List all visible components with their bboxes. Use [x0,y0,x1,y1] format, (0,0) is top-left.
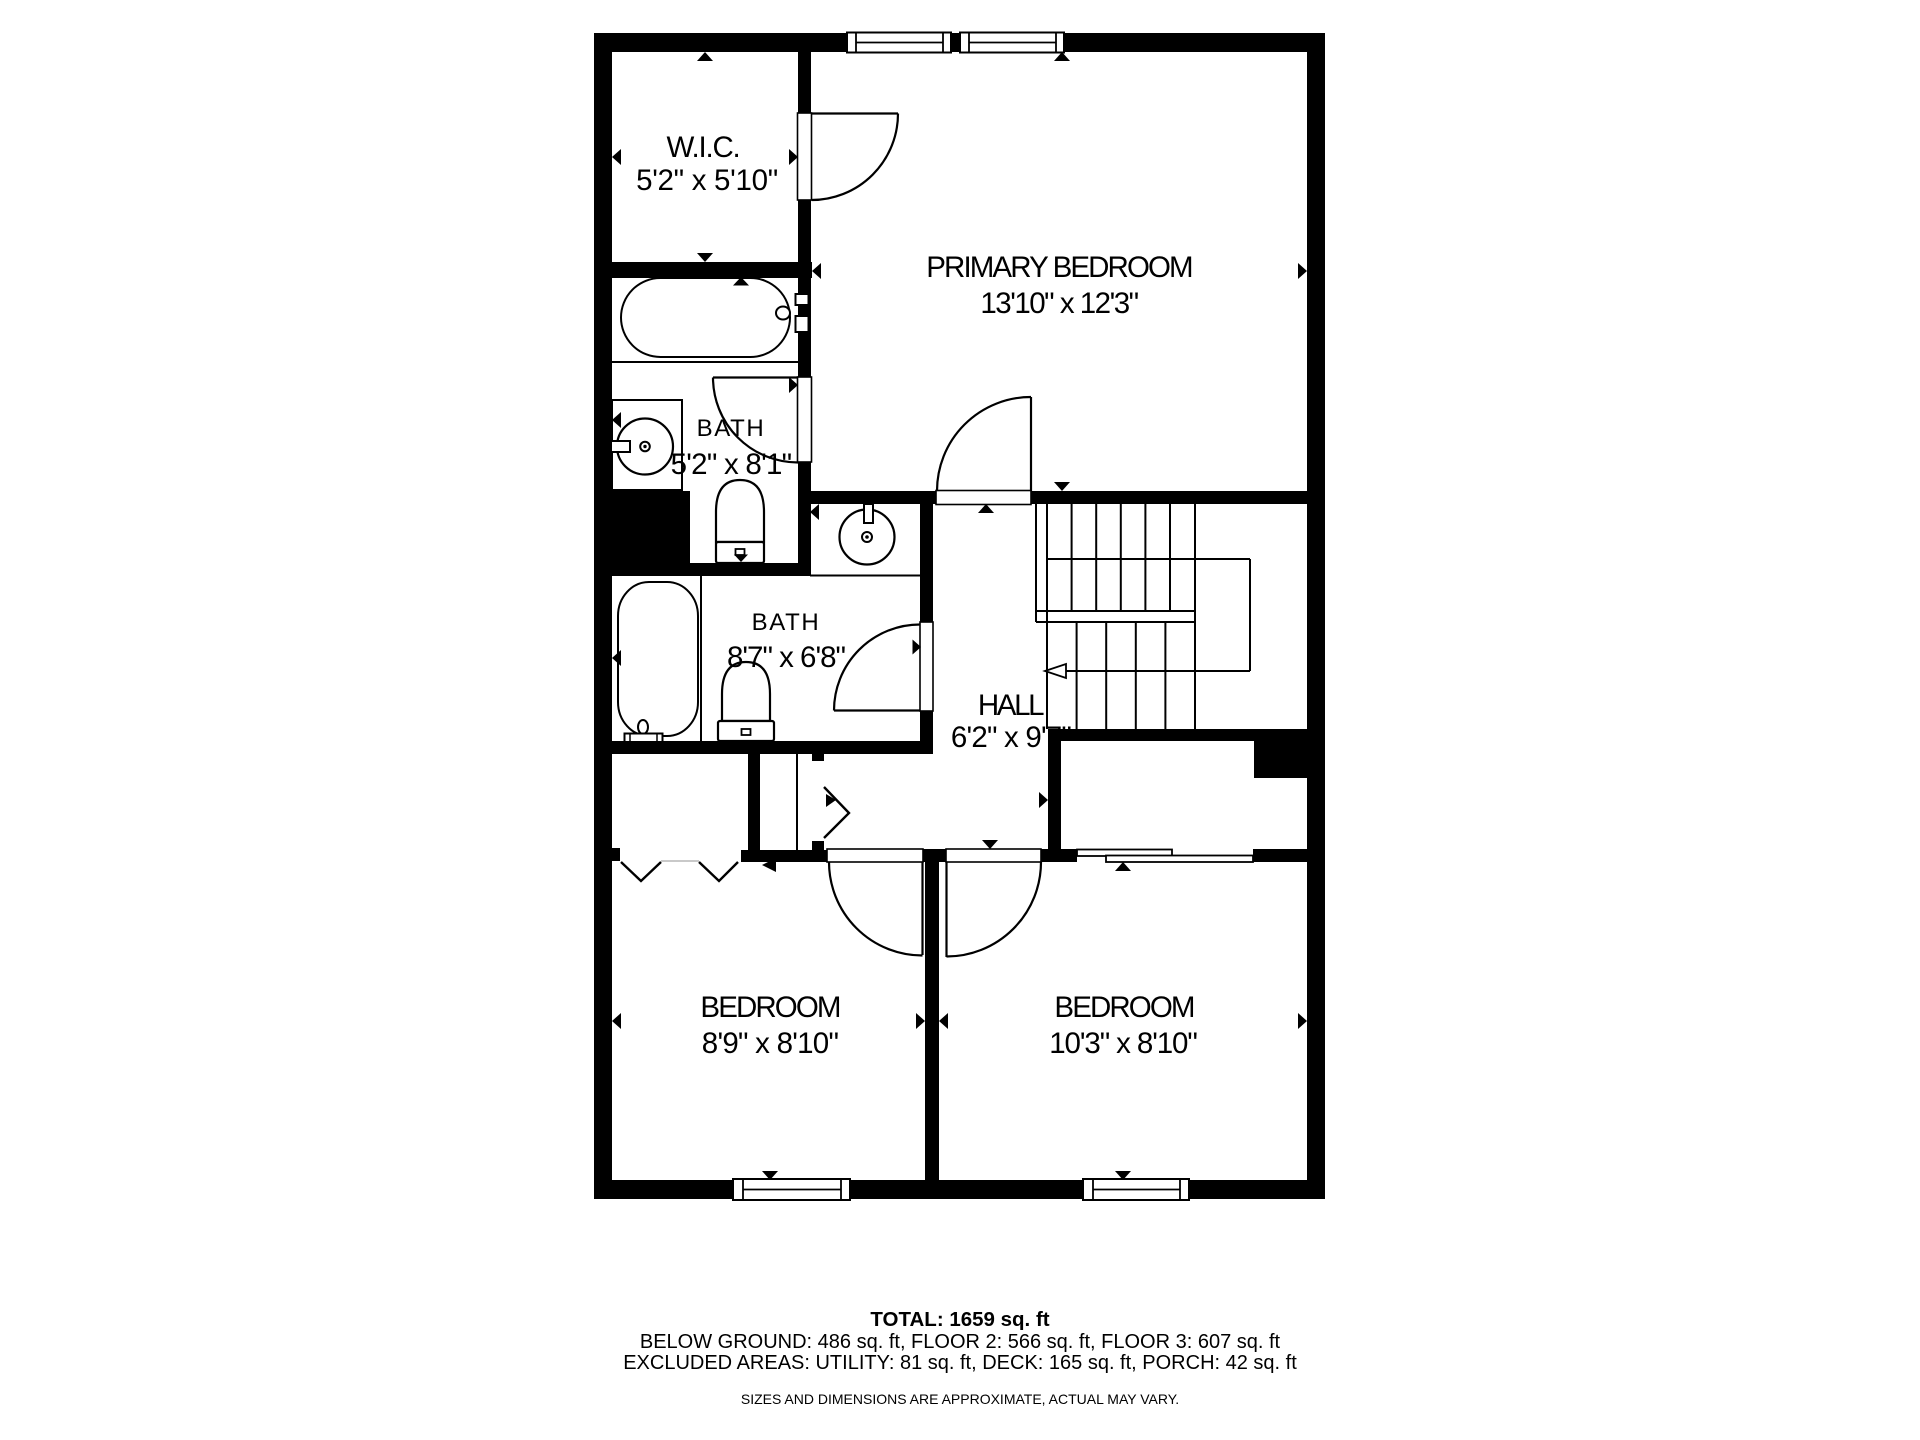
svg-text:8'9" x 8'10": 8'9" x 8'10" [702,1027,839,1060]
svg-text:13'10" x 12'3": 13'10" x 12'3" [980,287,1138,320]
svg-text:BEDROOM: BEDROOM [700,991,839,1024]
svg-text:SIZES AND DIMENSIONS ARE APPRO: SIZES AND DIMENSIONS ARE APPROXIMATE, AC… [741,1391,1179,1407]
svg-text:BEDROOM: BEDROOM [1054,991,1193,1024]
svg-text:8'7" x 6'8": 8'7" x 6'8" [727,641,846,674]
svg-text:W.I.C.: W.I.C. [666,131,739,164]
svg-text:BATH: BATH [752,609,821,636]
svg-text:BELOW GROUND: 486 sq. ft, FLOO: BELOW GROUND: 486 sq. ft, FLOOR 2: 566 s… [640,1331,1281,1353]
svg-text:5'2" x 5'10": 5'2" x 5'10" [636,164,778,197]
svg-text:BATH: BATH [697,415,766,442]
svg-text:10'3" x 8'10": 10'3" x 8'10" [1049,1027,1197,1060]
svg-text:PRIMARY BEDROOM: PRIMARY BEDROOM [926,251,1192,284]
svg-text:TOTAL: 1659 sq. ft: TOTAL: 1659 sq. ft [870,1308,1049,1331]
svg-text:HALL: HALL [978,689,1044,722]
svg-text:5'2" x 8'1": 5'2" x 8'1" [671,448,792,481]
svg-text:EXCLUDED AREAS: UTILITY: 81 sq: EXCLUDED AREAS: UTILITY: 81 sq. ft, DECK… [623,1352,1297,1374]
